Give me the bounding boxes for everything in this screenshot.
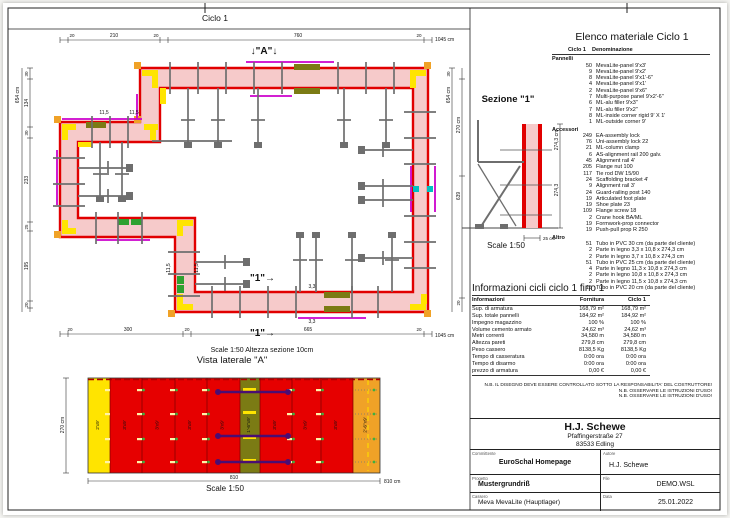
info-row: Altezza pareti279,8 cm279,8 cm [472, 340, 650, 347]
svg-text:665: 665 [304, 327, 313, 333]
info-row: Sup. totale pannelli184,92 m²184,92 m² [472, 313, 650, 320]
svg-text:30: 30 [24, 71, 29, 77]
cycle-info-rows: Sup. di armatura168,79 m²168,79 m² Sup. … [472, 306, 650, 375]
svg-text:1'-6"x9': 1'-6"x9' [246, 417, 252, 433]
autore-value: H.J. Schewe [609, 462, 720, 469]
committente-value: EuroSchal Homepage [470, 459, 600, 466]
plan-labels: 11,5 11,5 11,5 11,5 3,3 3,3 ↓"A"↓ "1"→ "… [99, 46, 315, 366]
svg-text:3'x9': 3'x9' [220, 420, 226, 430]
svg-text:3'x9': 3'x9' [272, 420, 278, 430]
col-informazioni: Informazioni [472, 297, 558, 304]
info-row: Volume cemento armato24,62 m³24,62 m³ [472, 327, 650, 334]
material-list-header: Ciclo 1 Denominazione [552, 47, 710, 55]
lateral-view-title: Vista laterale "A" [197, 355, 267, 366]
sezione-drawing: Sezione "1" 274,3 cm 274,3 25 cm Scale 1… [462, 94, 563, 250]
titleblock-row-2: Progetto Mustergrundriß File DEMO.WSL [470, 475, 720, 493]
title-block: H.J. Schewe Pfaffingerstraße 27 83533 Ed… [470, 418, 720, 510]
info-row: Peso cassero8138,5 Kg8138,5 Kg [472, 347, 650, 354]
svg-text:639: 639 [456, 192, 462, 201]
info-row: Tempo di casseratura0:00 ora0:00 ora [472, 354, 650, 361]
plan-props [53, 62, 436, 318]
svg-text:270 cm: 270 cm [60, 417, 66, 433]
material-row: 1ML-outside corner 9' [552, 119, 710, 125]
sezione-scale: Scale 1:50 [487, 241, 525, 250]
svg-text:20: 20 [456, 300, 461, 306]
company-header: H.J. Schewe Pfaffingerstraße 27 83533 Ed… [470, 419, 720, 450]
note-line: N.B. OSSERVARE LE ISTRUZIONI D'USO! [472, 394, 712, 400]
svg-text:20: 20 [67, 327, 73, 332]
svg-text:11,5: 11,5 [194, 263, 200, 273]
svg-text:810 cm: 810 cm [384, 479, 400, 485]
data-label: Data [603, 494, 612, 499]
svg-text:3'x9': 3'x9' [122, 420, 128, 430]
svg-text:3'x9': 3'x9' [333, 420, 339, 430]
svg-text:20: 20 [416, 33, 422, 38]
material-items: 249EA-assembly lock76Uni-assembly lock 2… [552, 133, 710, 234]
svg-text:760: 760 [294, 33, 303, 39]
svg-text:20: 20 [184, 327, 190, 332]
committente-cell: Committente EuroSchal Homepage [470, 450, 600, 474]
svg-text:2'-6"x9': 2'-6"x9' [363, 417, 369, 433]
svg-text:210: 210 [110, 33, 119, 39]
sheet-header-title: Ciclo 1 [160, 13, 270, 23]
progetto-cell: Progetto Mustergrundriß [470, 475, 600, 492]
file-label: File [603, 476, 610, 481]
company-name: H.J. Schewe [470, 421, 720, 433]
titleblock-row-1: Committente EuroSchal Homepage Autore H.… [470, 450, 720, 475]
material-items: 50MevaLite-panel 9'x3'9MevaLite-panel 9'… [552, 63, 710, 126]
note-line: N.B. IL DISEGNO DEVE ESSERE CONTROLLATO … [472, 383, 712, 389]
file-value: DEMO.WSL [631, 481, 720, 488]
svg-text:1045 cm: 1045 cm [435, 37, 454, 43]
company-address2: 83533 Edling [470, 441, 720, 449]
svg-text:30: 30 [446, 71, 451, 77]
svg-text:233: 233 [24, 176, 30, 185]
plan-accents [54, 62, 435, 318]
cycle-info-title: Informazioni cicli ciclo 1 fino 1 [472, 286, 650, 293]
cycle-info-table: Informazioni cicli ciclo 1 fino 1 Inform… [472, 286, 650, 376]
material-list-title: Elenco materiale Ciclo 1 [556, 31, 708, 43]
svg-text:270 cm: 270 cm [456, 117, 462, 133]
svg-text:30: 30 [24, 130, 29, 136]
svg-text:1045 cm: 1045 cm [435, 333, 454, 339]
svg-text:11,5: 11,5 [166, 263, 172, 273]
lateral-scale: Scale 1:50 [206, 484, 244, 493]
svg-text:20: 20 [24, 302, 29, 308]
material-col-denominazione: Denominazione [592, 47, 633, 53]
svg-text:134: 134 [24, 99, 30, 108]
svg-text:195: 195 [24, 262, 30, 271]
svg-text:20: 20 [69, 33, 75, 38]
svg-text:300: 300 [124, 327, 133, 333]
section-1-marker: "1"→ [250, 328, 275, 339]
cycle-info-header: Informazioni Fornitura Ciclo 1 [472, 295, 650, 306]
section-a-marker: ↓"A"↓ [251, 46, 278, 57]
svg-text:3'x9': 3'x9' [187, 420, 193, 430]
svg-text:11,5: 11,5 [129, 110, 139, 116]
info-row: Metri correnti34,580 m34,580 m [472, 333, 650, 340]
committente-label: Committente [472, 451, 496, 456]
svg-text:20: 20 [153, 33, 159, 38]
material-list: Ciclo 1 Denominazione Pannelli 50MevaLit… [552, 47, 710, 291]
material-section-pannelli: Pannelli 50MevaLite-panel 9'x3'9MevaLite… [552, 56, 710, 125]
file-cell: File DEMO.WSL [600, 475, 720, 492]
disclaimer-notes: N.B. IL DISEGNO DEVE ESSERE CONTROLLATO … [472, 383, 712, 400]
svg-text:3,3: 3,3 [309, 284, 316, 290]
col-ciclo1: Ciclo 1 [604, 297, 646, 304]
company-address1: Pfaffingerstraße 27 [470, 433, 720, 441]
data-cell: Data 25.01.2022 [600, 493, 720, 511]
info-row: Impegno magazzino100 %100 % [472, 320, 650, 327]
col-fornitura: Fornitura [558, 297, 604, 304]
info-row: prezzo di armatura0,00 €0,00 € [472, 368, 650, 375]
svg-text:11,5: 11,5 [99, 110, 109, 116]
material-section-accessori: Accessori 249EA-assembly lock76Uni-assem… [552, 127, 710, 234]
lateral-drawing: 2'x9' 3'x9' 3'x9' 3'x9' 3'x9' 1'-6"x9' 3… [60, 378, 400, 493]
data-value: 25.01.2022 [631, 499, 720, 506]
svg-text:3'x9': 3'x9' [303, 420, 309, 430]
svg-text:3'x9': 3'x9' [155, 420, 161, 430]
svg-text:25: 25 [24, 224, 29, 230]
titleblock-row-3: Cassero Meva MevaLite (Hauptlager) Data … [470, 493, 720, 511]
section-1-marker: "1"→ [250, 273, 275, 284]
sezione-title: Sezione "1" [482, 94, 535, 105]
material-row: 19Push-pull prop R 250 [552, 227, 710, 233]
cassero-cell: Cassero Meva MevaLite (Hauptlager) [470, 493, 600, 511]
autore-label: Autore [603, 451, 615, 456]
svg-text:654 cm: 654 cm [446, 87, 452, 103]
material-col-ciclo: Ciclo 1 [552, 47, 586, 53]
plan-scale-note: Scale 1:50 Altezza sezione 10cm [211, 347, 314, 354]
cassero-value: Meva MevaLite (Hauptlager) [478, 499, 600, 506]
svg-text:3,3: 3,3 [309, 319, 316, 325]
autore-cell: Autore H.J. Schewe [600, 450, 720, 474]
svg-text:20: 20 [416, 327, 422, 332]
plan-walls [60, 68, 428, 312]
svg-text:810: 810 [230, 475, 239, 481]
info-row: Sup. di armatura168,79 m²168,79 m² [472, 306, 650, 313]
info-row: Tempo di disarmo0:00 ora0:00 ora [472, 361, 650, 368]
svg-text:654 cm: 654 cm [15, 87, 21, 103]
progetto-value: Mustergrundriß [478, 481, 600, 488]
svg-text:2'x9': 2'x9' [95, 420, 101, 430]
